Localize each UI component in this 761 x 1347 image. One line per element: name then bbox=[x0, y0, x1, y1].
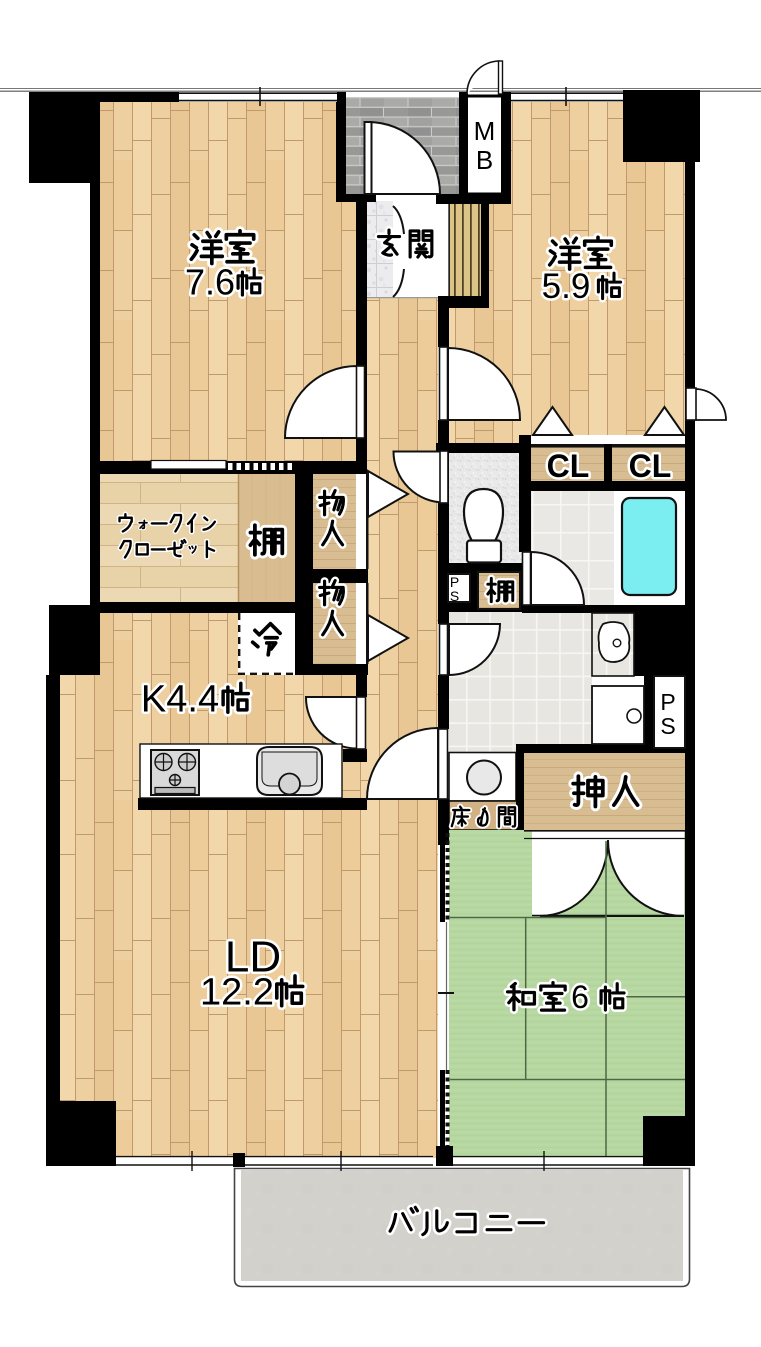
svg-text:M: M bbox=[474, 116, 496, 146]
svg-text:5.9: 5.9 bbox=[542, 267, 591, 306]
svg-text:K4.4: K4.4 bbox=[141, 678, 219, 720]
svg-text:P: P bbox=[660, 689, 675, 715]
svg-text:S: S bbox=[660, 713, 675, 739]
svg-text:CL: CL bbox=[547, 448, 590, 484]
svg-text:6: 6 bbox=[571, 979, 589, 1015]
svg-text:12.2: 12.2 bbox=[200, 971, 274, 1013]
svg-text:CL: CL bbox=[629, 448, 672, 484]
svg-text:7.6: 7.6 bbox=[185, 262, 235, 303]
svg-text:S: S bbox=[450, 588, 459, 604]
svg-text:B: B bbox=[476, 145, 493, 175]
